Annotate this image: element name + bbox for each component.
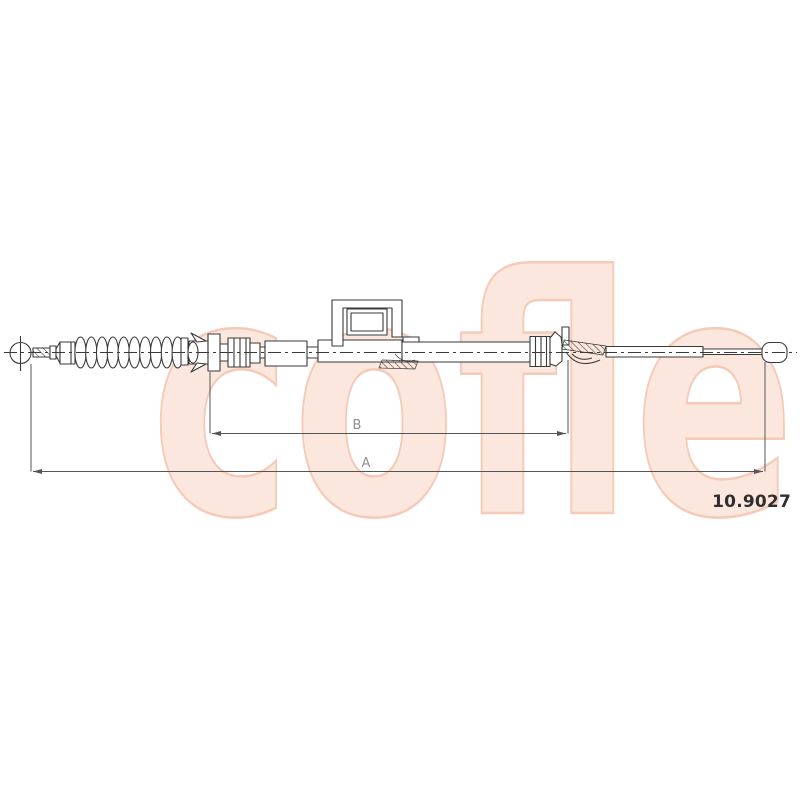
eyelet-end — [10, 336, 31, 371]
catalog-image: cofle — [0, 0, 800, 800]
dim-label-b: B — [353, 418, 362, 433]
part-number: 10.9027 — [712, 492, 791, 512]
dim-label-a: A — [362, 456, 371, 471]
brake-cable-diagram: cofle — [0, 0, 800, 800]
watermark-logo: cofle — [151, 207, 796, 591]
